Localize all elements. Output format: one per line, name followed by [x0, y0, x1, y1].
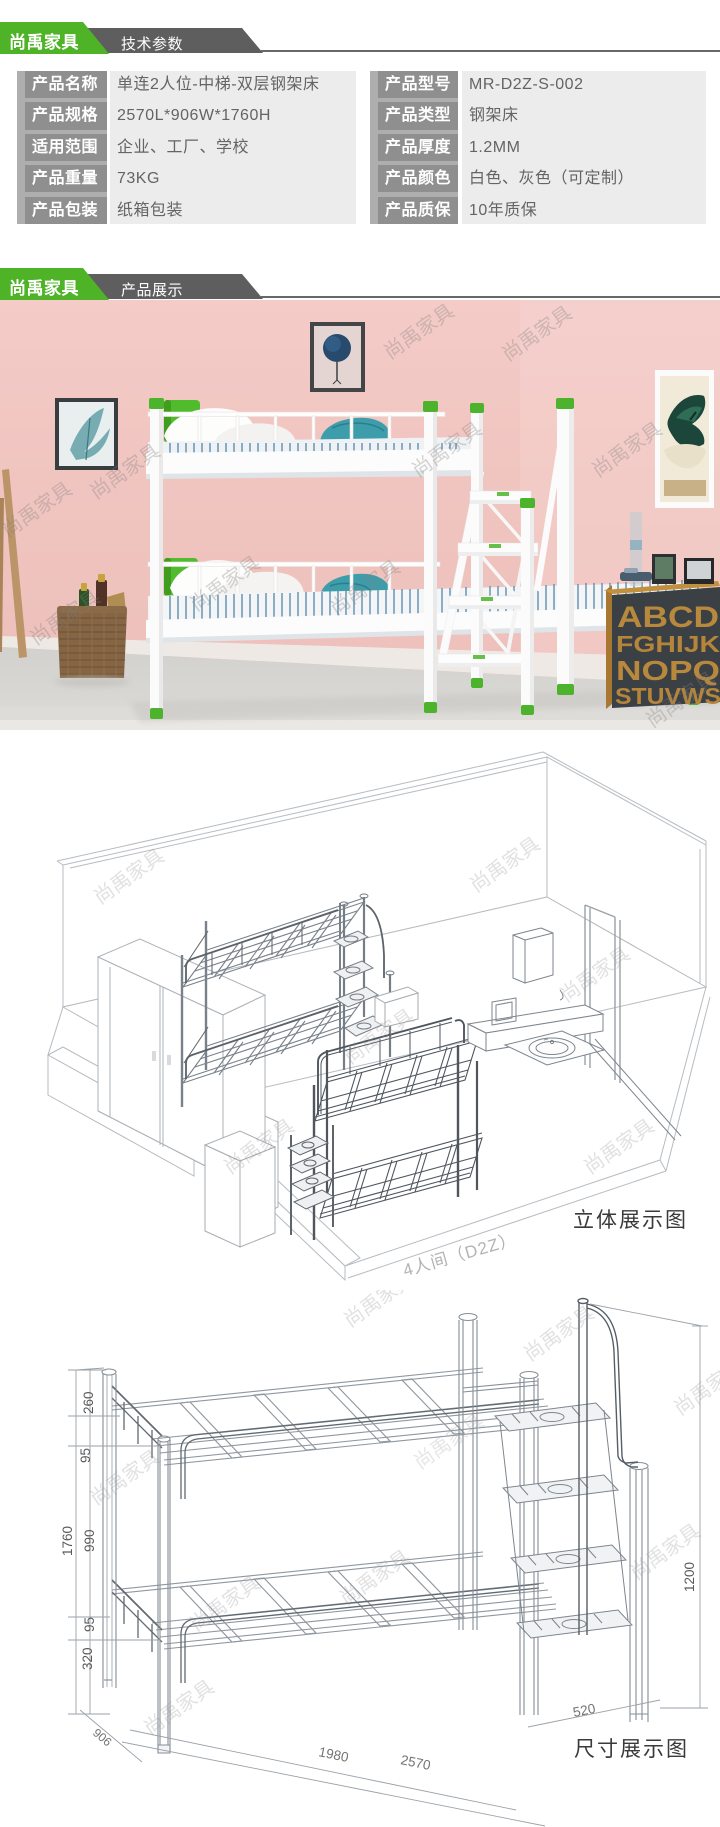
svg-text:990: 990: [82, 1529, 97, 1552]
svg-text:尚禹家具: 尚禹家具: [86, 1445, 165, 1510]
svg-text:260: 260: [81, 1391, 96, 1414]
svg-text:320: 320: [80, 1647, 95, 1670]
svg-text:FGHIJK: FGHIJK: [616, 631, 720, 657]
svg-text:ABCD: ABCD: [617, 601, 719, 634]
svg-text:1760: 1760: [60, 1526, 75, 1556]
svg-text:906: 906: [90, 1726, 115, 1750]
svg-text:95: 95: [82, 1617, 97, 1632]
svg-text:520: 520: [572, 1701, 597, 1720]
svg-text:1980: 1980: [317, 1744, 349, 1765]
svg-text:尚禹家具: 尚禹家具: [580, 1114, 659, 1179]
svg-text:尚禹家具: 尚禹家具: [340, 1290, 419, 1332]
svg-text:95: 95: [78, 1448, 93, 1463]
svg-text:2570: 2570: [399, 1752, 431, 1773]
svg-text:尚禹家具: 尚禹家具: [670, 1355, 720, 1420]
svg-text:尚禹家具: 尚禹家具: [140, 1675, 219, 1740]
svg-text:1200: 1200: [682, 1562, 697, 1592]
